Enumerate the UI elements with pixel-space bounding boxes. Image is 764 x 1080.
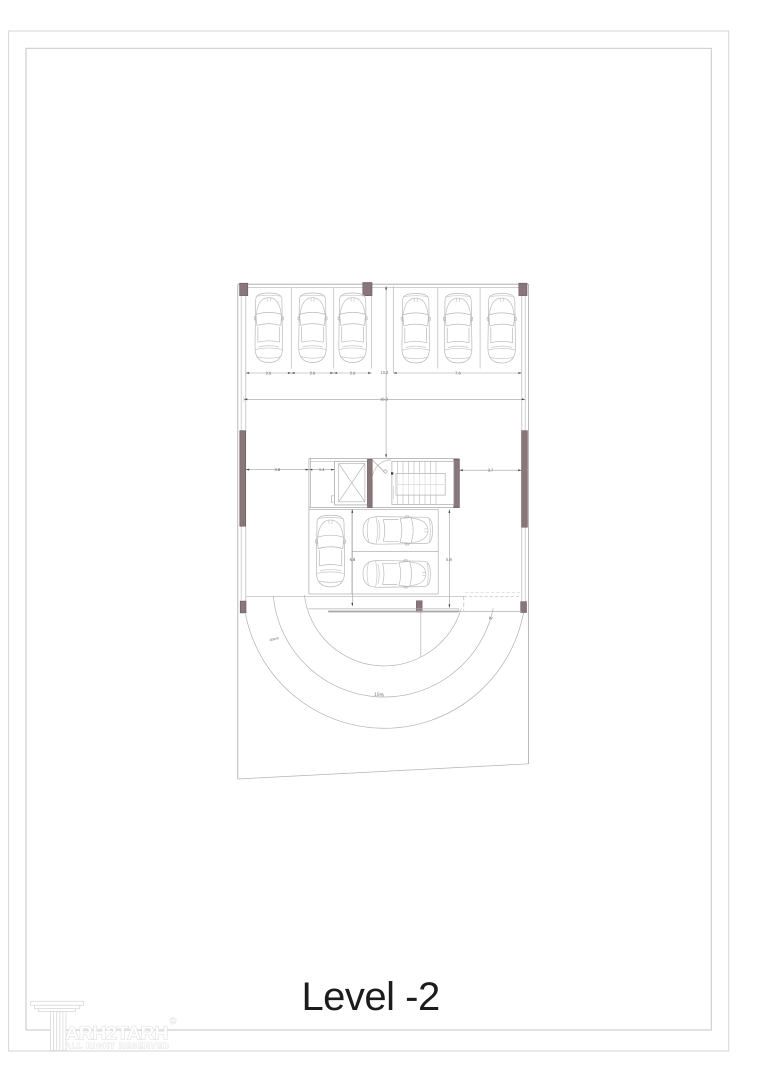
- svg-text:©: ©: [170, 1016, 177, 1027]
- svg-text:ALL RIGHT RESERVED: ALL RIGHT RESERVED: [65, 1041, 170, 1050]
- svg-text:5.8: 5.8: [350, 557, 356, 562]
- svg-text:5.9: 5.9: [446, 557, 452, 562]
- svg-text:10.2: 10.2: [381, 370, 390, 375]
- svg-text:2.6: 2.6: [310, 370, 316, 375]
- svg-text:7.6: 7.6: [455, 370, 461, 375]
- svg-text:1.4: 1.4: [319, 467, 325, 472]
- svg-text:2.6: 2.6: [266, 370, 272, 375]
- svg-text:3.7: 3.7: [488, 468, 494, 473]
- svg-text:16.3: 16.3: [380, 397, 389, 402]
- svg-text:2.6: 2.6: [350, 370, 356, 375]
- svg-text:15%: 15%: [374, 692, 385, 699]
- svg-text:3.8: 3.8: [275, 467, 281, 472]
- svg-text:Level -2: Level -2: [301, 975, 439, 1019]
